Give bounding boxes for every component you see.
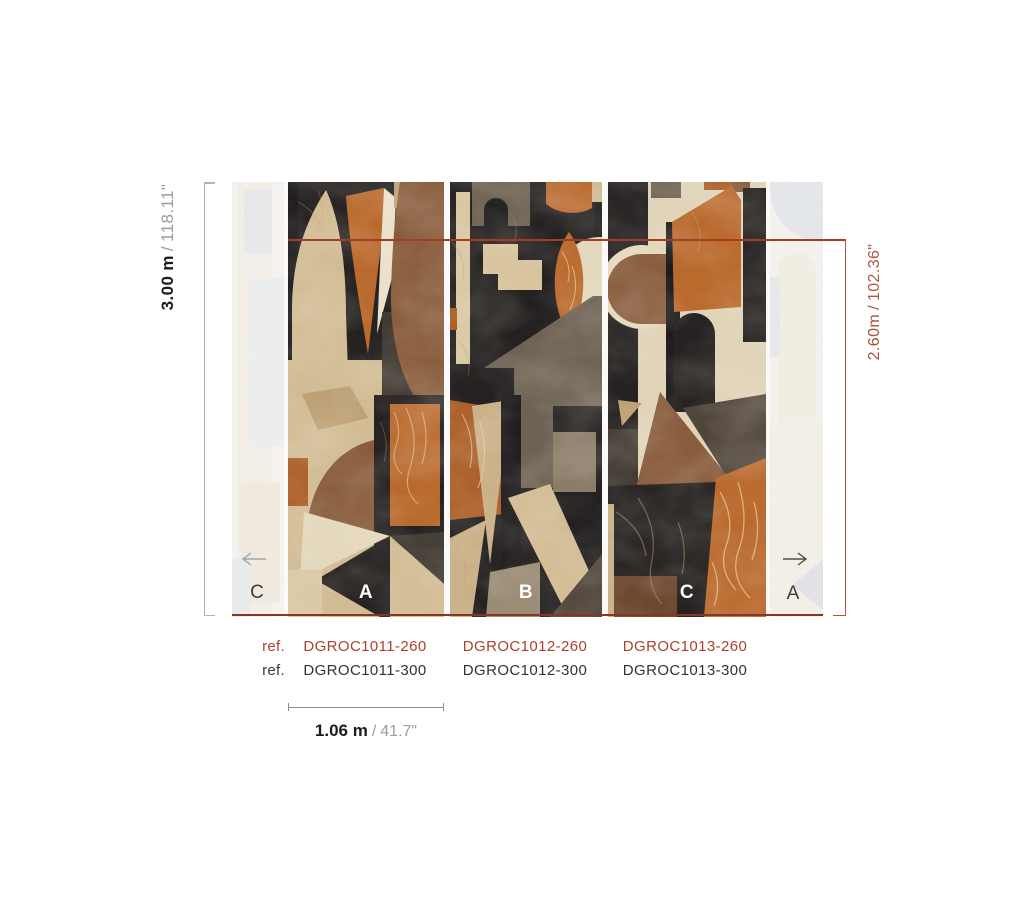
arrow-left-icon	[240, 551, 268, 567]
ref-code: DGROC1012-300	[463, 662, 587, 679]
mural-baseline	[232, 614, 823, 616]
faded-panel-left-label: C	[250, 582, 264, 604]
arrow-right-icon	[781, 551, 809, 567]
ref-code: DGROC1013-260	[623, 638, 747, 655]
marble-grain-overlay	[232, 182, 823, 617]
partial-height-line	[288, 239, 846, 241]
panel-a-label: A	[359, 582, 373, 604]
total-height-dimension: 3.00 m/118.11"	[158, 127, 180, 367]
wallcovering-spec-sheet: 3.00 m/118.11" 2.60m/102.36" C A B C A r…	[0, 0, 1024, 908]
dimension-separator: /	[158, 246, 177, 251]
panel-c-label: C	[680, 582, 694, 604]
ref-code: DGROC1011-260	[303, 638, 426, 655]
panel-width-right-tick	[443, 703, 444, 711]
partial-height-dimension: 2.60m/102.36"	[866, 182, 888, 422]
panel-width-line	[288, 707, 443, 708]
panel-width-dimension: 1.06 m/41.7"	[315, 721, 417, 741]
total-height-imperial: 118.11"	[158, 184, 177, 242]
panel-width-imperial: 41.7"	[380, 723, 417, 740]
partial-height-imperial: 102.36"	[866, 244, 883, 301]
dimension-separator: /	[866, 305, 883, 310]
partial-height-bracket	[845, 239, 846, 616]
height-bracket-top-tick	[204, 182, 215, 184]
ref-code: DGROC1013-300	[623, 662, 747, 679]
height-bracket-line	[204, 182, 206, 616]
ref-label-300: ref.	[232, 662, 285, 679]
mural-artwork	[232, 182, 823, 617]
dimension-separator: /	[372, 723, 376, 740]
partial-height-metric: 2.60m	[866, 314, 883, 360]
ref-code: DGROC1012-260	[463, 638, 587, 655]
faded-panel-right-label: A	[787, 583, 800, 605]
partial-height-bottom-tick	[833, 615, 846, 616]
ref-code: DGROC1011-300	[303, 662, 426, 679]
total-height-metric: 3.00 m	[158, 255, 177, 310]
panel-b-label: B	[519, 582, 533, 604]
panel-width-left-tick	[288, 703, 289, 711]
height-bracket-bottom-tick	[204, 615, 215, 617]
panel-width-metric: 1.06 m	[315, 721, 368, 740]
ref-label-260: ref.	[232, 638, 285, 655]
